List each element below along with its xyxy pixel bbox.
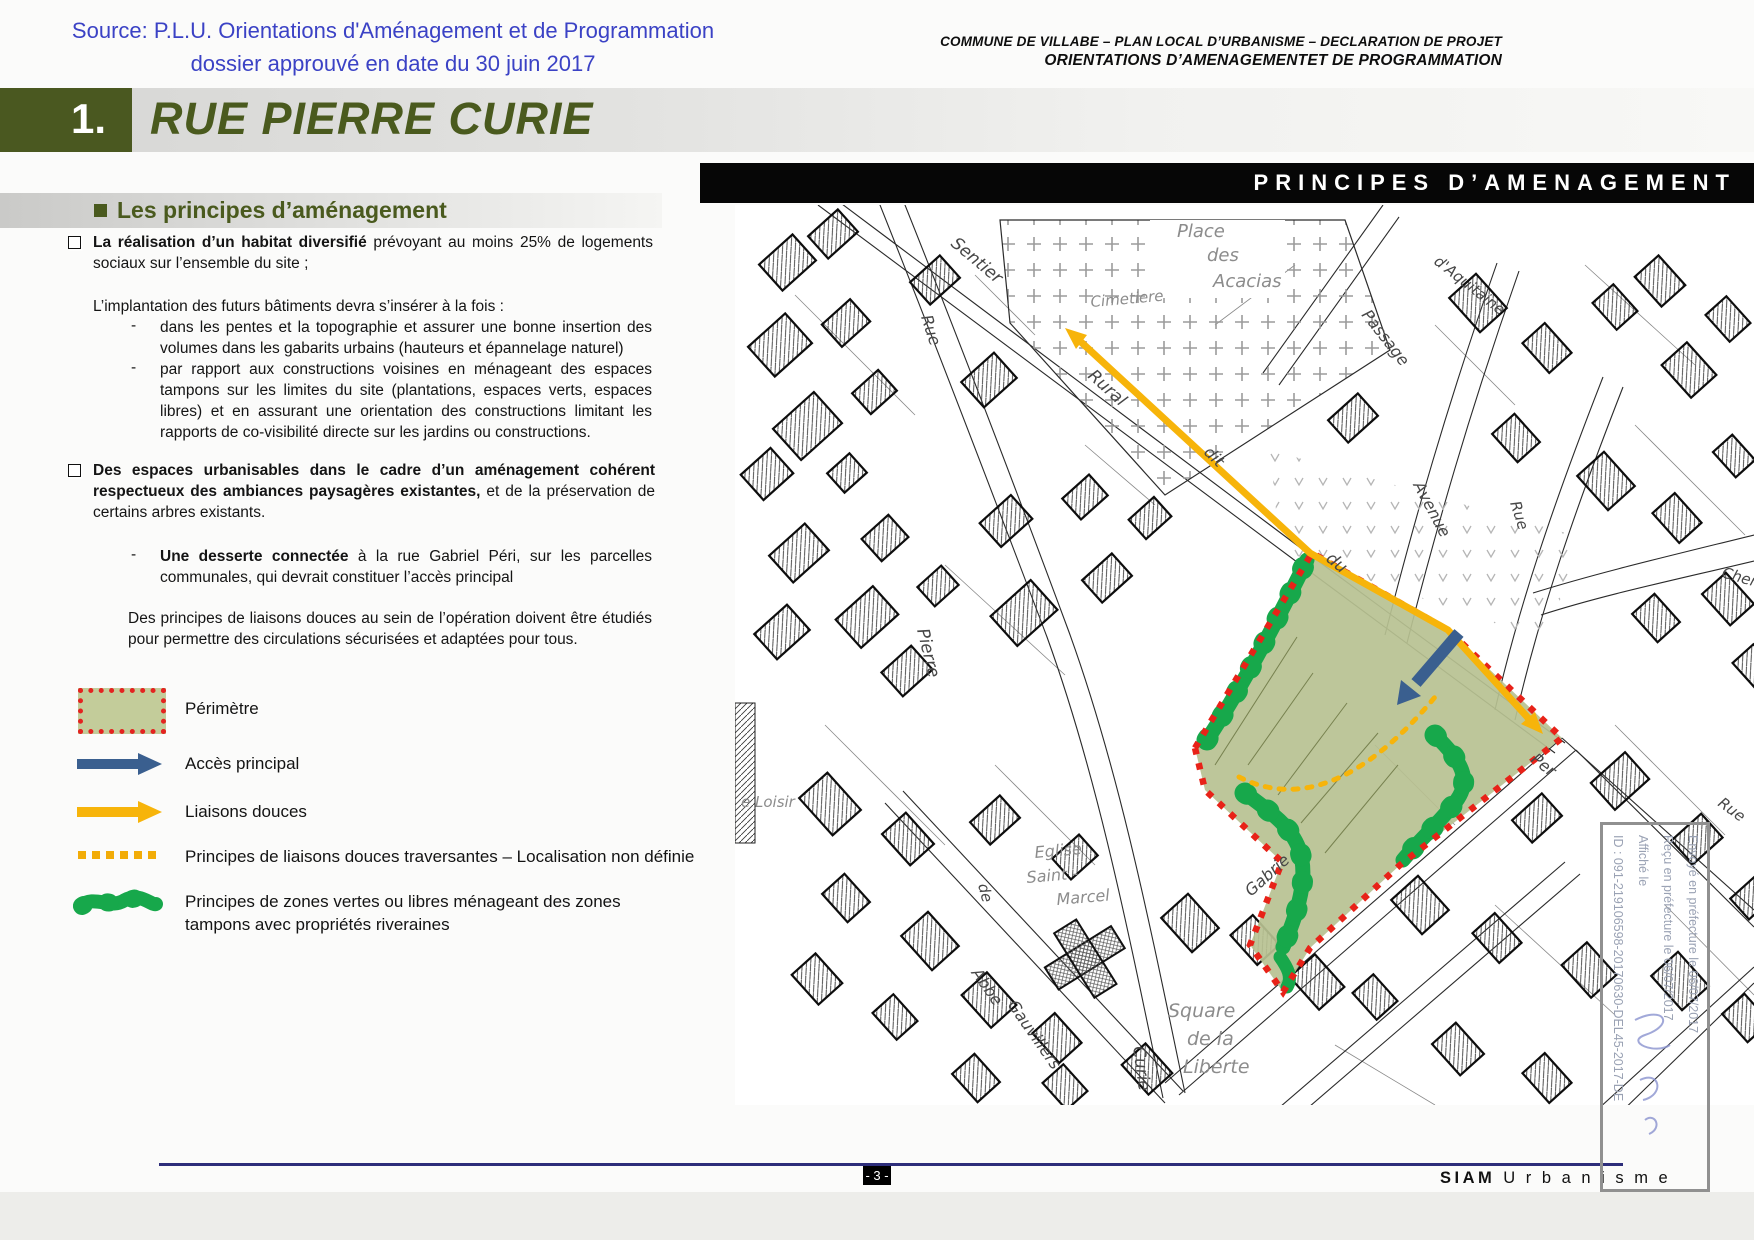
document-header-line2: ORIENTATIONS D’AMENAGEMENTET DE PROGRAMM… xyxy=(582,52,1502,70)
item1-bold-text: La réalisation d’un habitat diversifié xyxy=(93,234,367,251)
document-header: COMMUNE DE VILLABE – PLAN LOCAL D’URBANI… xyxy=(582,34,1502,70)
section-heading-row: Les principes d’aménagement xyxy=(94,193,447,228)
square-bullet-icon xyxy=(94,204,107,217)
legend-perimeter-swatch xyxy=(78,688,166,734)
signature-icon xyxy=(1625,1000,1685,1140)
svg-text:Rue: Rue xyxy=(1715,794,1749,826)
document-header-line1: COMMUNE DE VILLABE – PLAN LOCAL D’URBANI… xyxy=(582,34,1502,49)
legend-label-traversantes: Principes de liaisons douces traversante… xyxy=(185,845,725,868)
legend-label-perimetre: Périmètre xyxy=(185,697,259,720)
legend-label-zones-vertes: Principes de zones vertes ou libres ména… xyxy=(185,890,625,936)
footer-rule xyxy=(159,1163,1623,1166)
map-banner: PRINCIPES D’AMENAGEMENT xyxy=(700,163,1754,203)
svg-text:e Loisir: e Loisir xyxy=(741,793,796,811)
checkbox-bullet-icon xyxy=(68,464,81,477)
svg-text:des: des xyxy=(1207,245,1239,266)
legend-label-liaisons: Liaisons douces xyxy=(185,800,307,823)
legend-green-blob-icon xyxy=(70,886,166,922)
paragraph-sub1: dans les pentes et la topographie et ass… xyxy=(160,317,652,359)
svg-text:Saint -: Saint - xyxy=(1026,864,1079,887)
sub3-bold-text: Une desserte connectée xyxy=(160,548,349,565)
paragraph-item1: La réalisation d’un habitat diversifié p… xyxy=(93,232,653,274)
page-number: - 3 - xyxy=(863,1166,891,1185)
paragraph-sub3: Une desserte connectée à la rue Gabriel … xyxy=(160,546,652,588)
paragraph-item2: Des espaces urbanisables dans le cadre d… xyxy=(93,460,655,523)
svg-text:Place: Place xyxy=(1177,221,1225,242)
svg-text:Rue: Rue xyxy=(917,312,945,348)
section-heading: Les principes d’aménagement xyxy=(117,197,447,224)
planted-strip xyxy=(735,703,755,843)
svg-text:Acacias: Acacias xyxy=(1212,271,1282,292)
dash-bullet: - xyxy=(131,317,136,335)
svg-text:de: de xyxy=(974,881,996,904)
svg-text:Liberte: Liberte xyxy=(1183,1056,1250,1078)
title-number: 1. xyxy=(0,88,132,152)
paragraph-sub2: par rapport aux constructions voisines e… xyxy=(160,359,652,443)
church-building xyxy=(1032,906,1138,1012)
bottom-strip xyxy=(0,1192,1754,1240)
paragraph-closing: Des principes de liaisons douces au sein… xyxy=(128,608,652,650)
svg-text:Marcel: Marcel xyxy=(1056,885,1111,909)
svg-text:Square: Square xyxy=(1168,1000,1235,1022)
dash-bullet: - xyxy=(131,546,136,564)
checkbox-bullet-icon xyxy=(68,236,81,249)
legend-yellow-arrow-icon xyxy=(72,798,172,826)
brand-siam: SIAM xyxy=(1440,1169,1495,1187)
svg-text:de la: de la xyxy=(1187,1028,1234,1050)
legend-blue-arrow-icon xyxy=(72,750,172,778)
page-title: RUE PIERRE CURIE xyxy=(150,88,594,152)
legend-label-acces: Accès principal xyxy=(185,752,299,775)
dash-bullet: - xyxy=(131,359,136,377)
paragraph-intro: L’implantation des futurs bâtiments devr… xyxy=(93,296,653,317)
legend-yellow-dotted-icon xyxy=(78,851,156,859)
